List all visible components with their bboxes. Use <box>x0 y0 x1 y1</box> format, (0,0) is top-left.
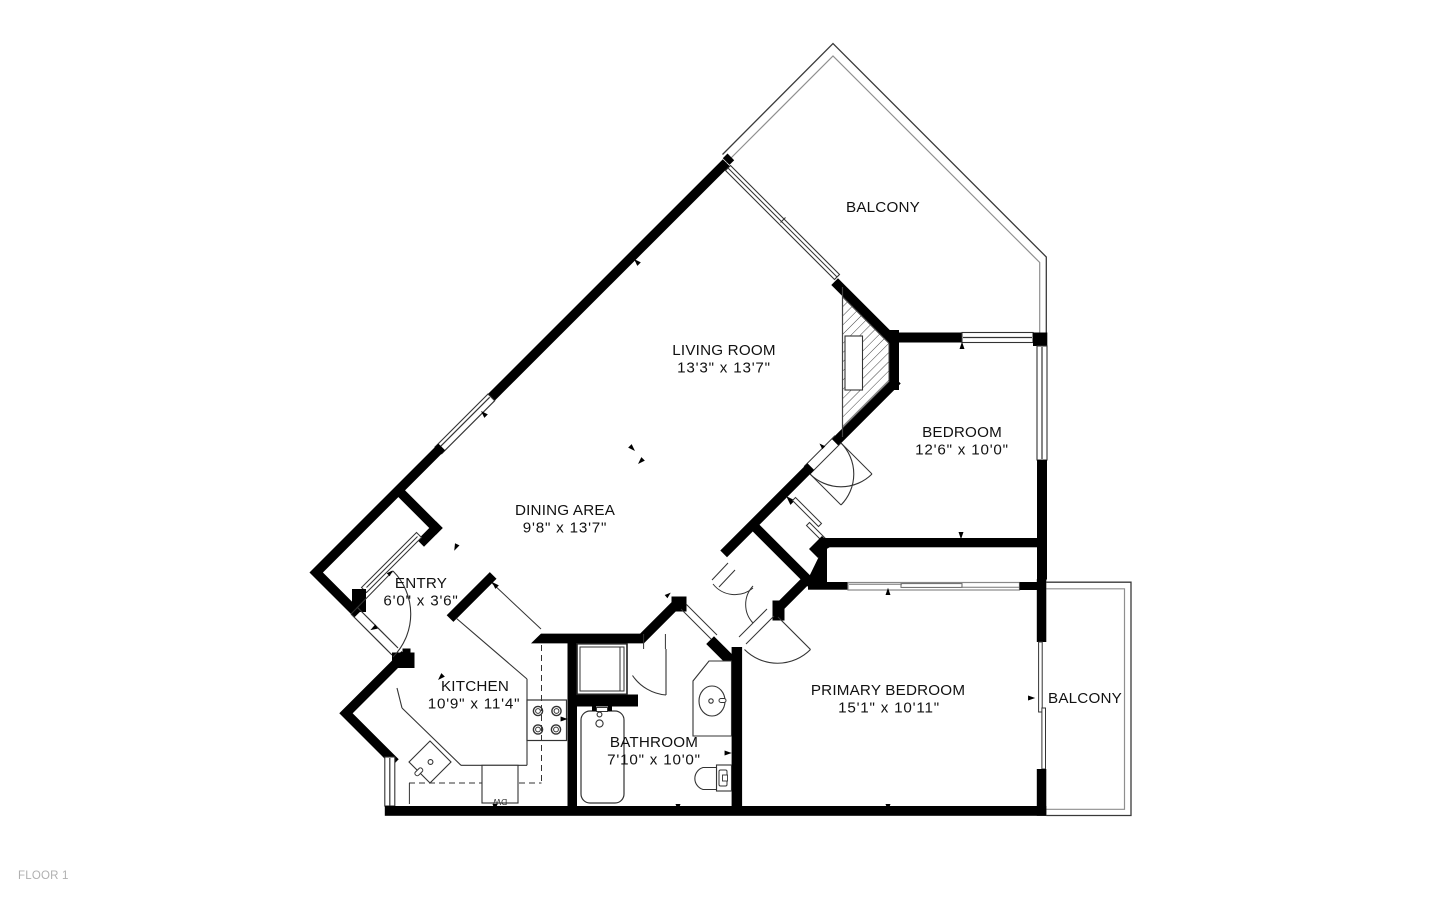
svg-text:7'10" x 10'0": 7'10" x 10'0" <box>607 752 701 769</box>
svg-text:BALCONY: BALCONY <box>1048 690 1122 707</box>
svg-text:FLOOR 1: FLOOR 1 <box>18 870 69 882</box>
svg-text:BEDROOM: BEDROOM <box>922 424 1002 441</box>
svg-text:6'0" x 3'6": 6'0" x 3'6" <box>383 593 458 610</box>
svg-text:9'8" x 13'7": 9'8" x 13'7" <box>523 520 607 537</box>
svg-text:BATHROOM: BATHROOM <box>610 734 698 751</box>
svg-text:KITCHEN: KITCHEN <box>441 678 509 695</box>
svg-text:13'3" x 13'7": 13'3" x 13'7" <box>677 360 771 377</box>
svg-text:LIVING ROOM: LIVING ROOM <box>672 342 775 359</box>
svg-text:BALCONY: BALCONY <box>846 199 920 216</box>
svg-text:15'1" x 10'11": 15'1" x 10'11" <box>838 700 940 717</box>
svg-text:10'9" x 11'4": 10'9" x 11'4" <box>428 696 521 713</box>
svg-text:PRIMARY BEDROOM: PRIMARY BEDROOM <box>811 682 965 699</box>
svg-text:12'6" x 10'0": 12'6" x 10'0" <box>915 442 1009 459</box>
svg-text:DINING AREA: DINING AREA <box>515 502 616 519</box>
svg-text:ENTRY: ENTRY <box>395 575 447 592</box>
